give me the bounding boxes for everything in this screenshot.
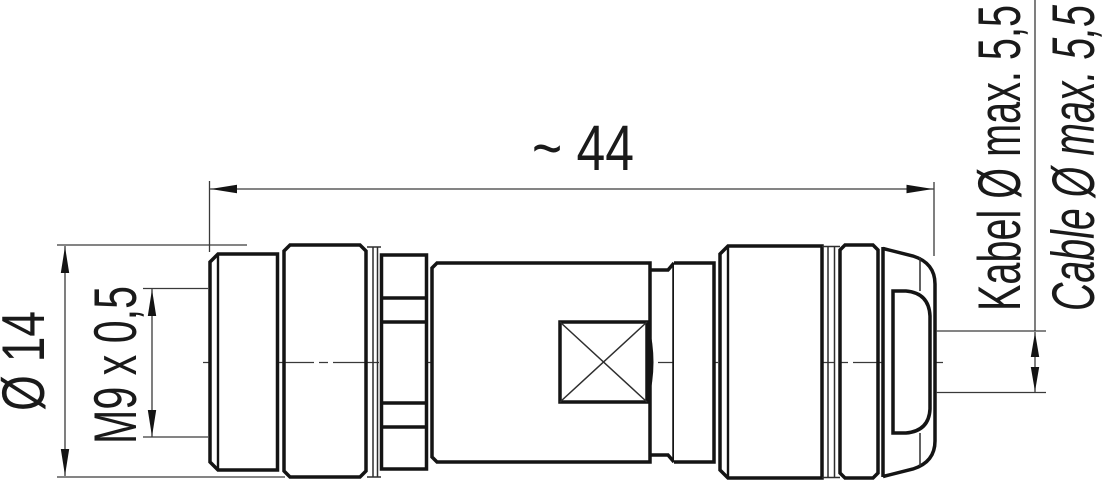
arrowhead-down xyxy=(148,410,156,437)
neck-bottom-edge xyxy=(650,455,674,462)
connector-body xyxy=(210,245,935,478)
drawing-canvas: ~ 44 Ø 14 M9 x 0,5 Kabel Ø max. 5,5 Cabl… xyxy=(0,0,1103,480)
dimension-length: ~ 44 xyxy=(210,112,935,256)
arrowhead-left xyxy=(211,185,238,193)
clamp-screw-square xyxy=(560,322,652,402)
arrowhead-down xyxy=(1031,367,1039,392)
hex-nut xyxy=(382,255,427,469)
m9-connector-technical-drawing: ~ 44 Ø 14 M9 x 0,5 Kabel Ø max. 5,5 Cabl… xyxy=(0,0,1103,480)
dimension-cable-diameter: Kabel Ø max. 5,5 Cable Ø max. 5,5 xyxy=(936,0,1103,393)
arrowhead-up xyxy=(148,290,156,317)
rear-gland-body xyxy=(720,246,822,478)
cable-diameter-label-de: Kabel Ø max. 5,5 xyxy=(966,5,1033,311)
hex-outline xyxy=(382,255,427,469)
neck-top-edge xyxy=(650,263,674,270)
length-dimension-label: ~ 44 xyxy=(532,112,634,184)
front-knurl xyxy=(284,245,366,477)
arrowhead-up xyxy=(1031,333,1039,358)
arrowhead-down xyxy=(61,449,69,476)
front-lip xyxy=(210,254,278,470)
thread-label: M9 x 0,5 xyxy=(82,286,149,444)
arrowhead-right xyxy=(907,185,934,193)
cable-exit-contour xyxy=(893,291,930,433)
rear-knurl xyxy=(840,245,878,478)
dimension-thread: M9 x 0,5 xyxy=(82,286,208,444)
rear-gland-outline xyxy=(720,246,822,478)
outer-diameter-label: Ø 14 xyxy=(0,311,57,411)
bend-relief-cap xyxy=(883,247,935,477)
arrowhead-up xyxy=(61,247,69,274)
cable-diameter-label-en: Cable Ø max. 5,5 xyxy=(1040,5,1103,311)
collar-outline xyxy=(674,263,714,462)
front-lip-outline xyxy=(210,254,278,470)
